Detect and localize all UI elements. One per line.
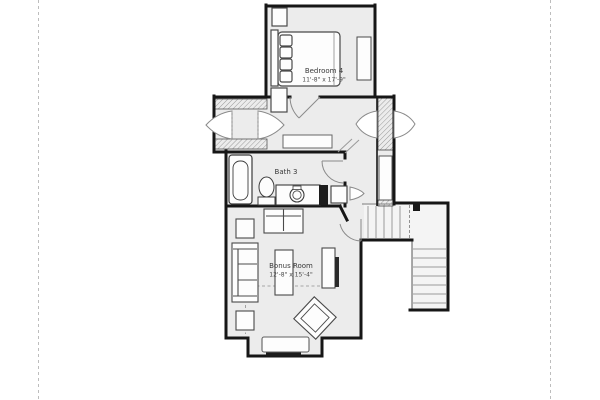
- sofa-icon: [232, 243, 258, 302]
- window: [266, 353, 301, 357]
- vanity-sink-icon: [276, 185, 320, 205]
- toilet-icon: [258, 177, 275, 205]
- side-table-icon: [236, 311, 254, 330]
- bedroom-label: Bedroom 4: [305, 67, 344, 75]
- window-seat-icon: [262, 337, 309, 352]
- floor-plan-sheet: Bedroom 4 11'-8" x 17'-9" Bath 3 Bonus R…: [0, 0, 600, 400]
- hall-table-icon: [283, 135, 332, 148]
- side-table-icon: [236, 219, 254, 238]
- nightstand-icon: [272, 8, 287, 26]
- bonus-room-dimensions: 12'-8" x 15'-4": [269, 272, 313, 279]
- bedroom-dimensions: 11'-8" x 17'-9": [302, 77, 346, 84]
- bath-label: Bath 3: [275, 168, 298, 176]
- cabinet-icon: [271, 88, 287, 112]
- linen-cabinet-icon: [379, 156, 392, 200]
- wall-stub: [319, 185, 328, 205]
- bath-cabinet-icon: [331, 186, 347, 203]
- bonus-room-label: Bonus Room: [269, 262, 313, 270]
- newel-post: [413, 204, 420, 211]
- loveseat-icon: [264, 209, 303, 233]
- dresser-icon: [357, 37, 371, 80]
- bathtub-icon: [229, 155, 252, 204]
- floor-plan-drawing: Bedroom 4 11'-8" x 17'-9" Bath 3 Bonus R…: [0, 0, 600, 400]
